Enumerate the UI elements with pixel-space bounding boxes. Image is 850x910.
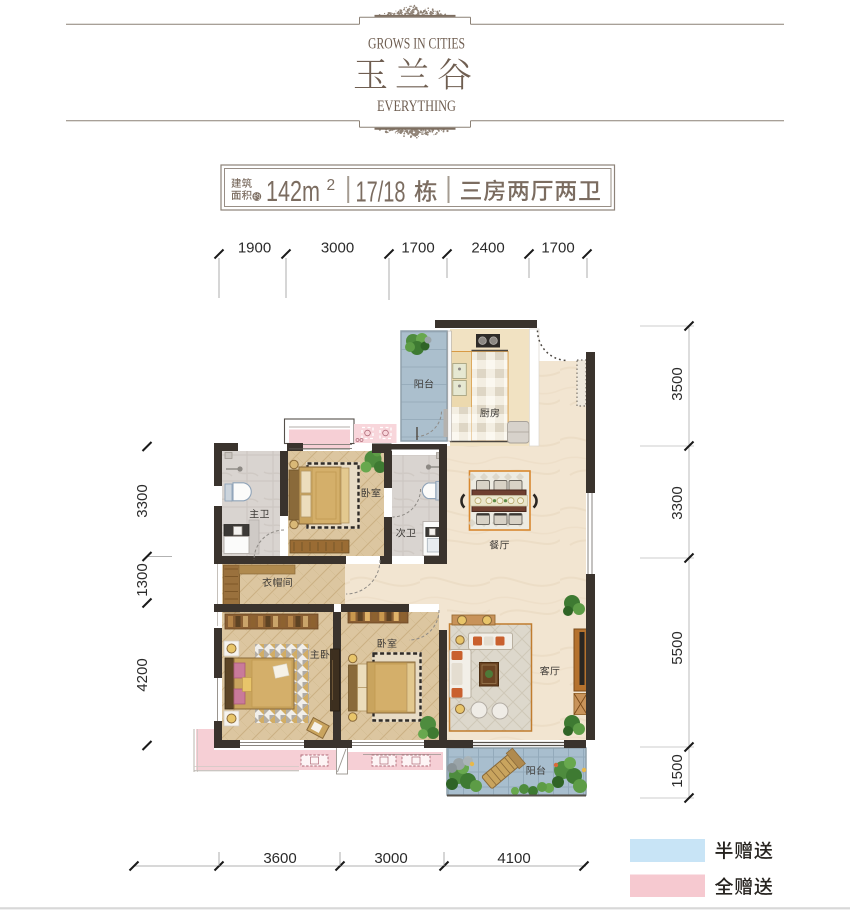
svg-text:EVERYTHING: EVERYTHING [377,98,456,115]
svg-text:5500: 5500 [669,631,686,664]
svg-text:3300: 3300 [669,486,686,519]
svg-text:4100: 4100 [497,850,530,867]
svg-text:3300: 3300 [134,484,151,517]
svg-text:4200: 4200 [134,658,151,691]
svg-text:1700: 1700 [401,240,434,257]
svg-text:3600: 3600 [263,850,296,867]
svg-text:1500: 1500 [669,754,686,787]
svg-text:1700: 1700 [541,240,574,257]
svg-text:GROWS IN CITIES: GROWS IN CITIES [368,36,465,53]
svg-text:2: 2 [327,177,336,194]
svg-text:3500: 3500 [669,367,686,400]
svg-text:2400: 2400 [471,240,504,257]
svg-text:142m: 142m [266,176,320,208]
svg-text:1900: 1900 [238,240,271,257]
svg-text:1300: 1300 [134,563,151,596]
svg-text:3000: 3000 [321,240,354,257]
svg-text:17/18: 17/18 [356,177,406,209]
svg-text:3000: 3000 [374,850,407,867]
